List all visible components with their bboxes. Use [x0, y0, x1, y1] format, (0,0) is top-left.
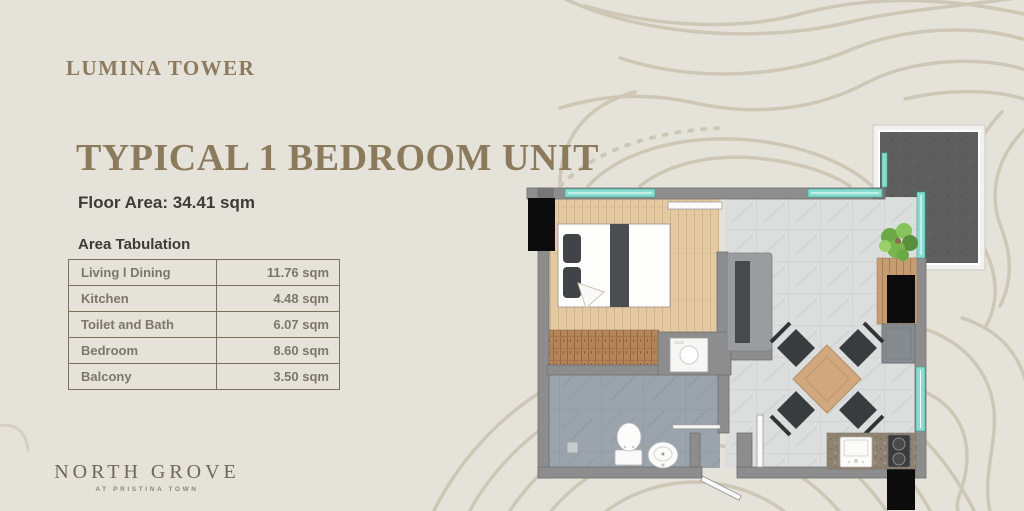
area-label-cell: Bedroom	[69, 338, 217, 364]
refrigerator	[882, 324, 915, 363]
table-row: Living l Dining 11.76 sqm	[69, 260, 340, 286]
bed-runner	[610, 224, 629, 307]
kitchen-counter	[827, 433, 916, 469]
pillow	[563, 234, 581, 263]
bedroom-sliding-door	[668, 202, 722, 209]
kitchen-corner-counter	[887, 468, 915, 510]
table-row: Bedroom 8.60 sqm	[69, 338, 340, 364]
wardrobe	[547, 330, 659, 367]
towel-bar	[673, 425, 720, 429]
toilet	[615, 423, 642, 465]
shower-drain	[567, 442, 578, 453]
floor-area-text: Floor Area: 34.41 sqm	[78, 193, 255, 213]
washing-machine	[670, 338, 708, 372]
developer-logo: NORTH GROVE AT PRISTINA TOWN	[40, 461, 254, 493]
area-label-cell: Kitchen	[69, 286, 217, 312]
ac-ledge	[528, 198, 555, 251]
sofa	[727, 253, 772, 351]
brochure-page: LUMINA TOWER TYPICAL 1 BEDROOM UNIT Floo…	[0, 0, 1024, 511]
logo-tagline: AT PRISTINA TOWN	[40, 486, 254, 493]
kitchen-sink	[840, 437, 872, 467]
area-value-cell: 6.07 sqm	[217, 312, 340, 338]
area-label-cell: Living l Dining	[69, 260, 217, 286]
table-row: Toilet and Bath 6.07 sqm	[69, 312, 340, 338]
page-title: TYPICAL 1 BEDROOM UNIT	[76, 136, 556, 180]
area-value-cell: 8.60 sqm	[217, 338, 340, 364]
area-tabulation-heading: Area Tabulation	[78, 236, 190, 253]
area-value-cell: 11.76 sqm	[217, 260, 340, 286]
bed	[558, 224, 670, 308]
lavatory-sink	[648, 442, 678, 468]
area-label-cell: Toilet and Bath	[69, 312, 217, 338]
table-row: Balcony 3.50 sqm	[69, 364, 340, 390]
area-table: Living l Dining 11.76 sqm Kitchen 4.48 s…	[68, 259, 340, 390]
bathroom-door	[757, 415, 763, 467]
kitchen-tall-counter-void	[887, 275, 915, 323]
area-label-cell: Balcony	[69, 364, 217, 390]
pillow	[563, 267, 581, 298]
logo-name: NORTH GROVE	[40, 461, 254, 484]
stove	[888, 435, 910, 467]
table-row: Kitchen 4.48 sqm	[69, 286, 340, 312]
entry-door	[701, 476, 742, 500]
brand-name: LUMINA TOWER	[66, 56, 255, 81]
area-value-cell: 4.48 sqm	[217, 286, 340, 312]
balcony-side-window	[882, 153, 887, 187]
area-value-cell: 3.50 sqm	[217, 364, 340, 390]
